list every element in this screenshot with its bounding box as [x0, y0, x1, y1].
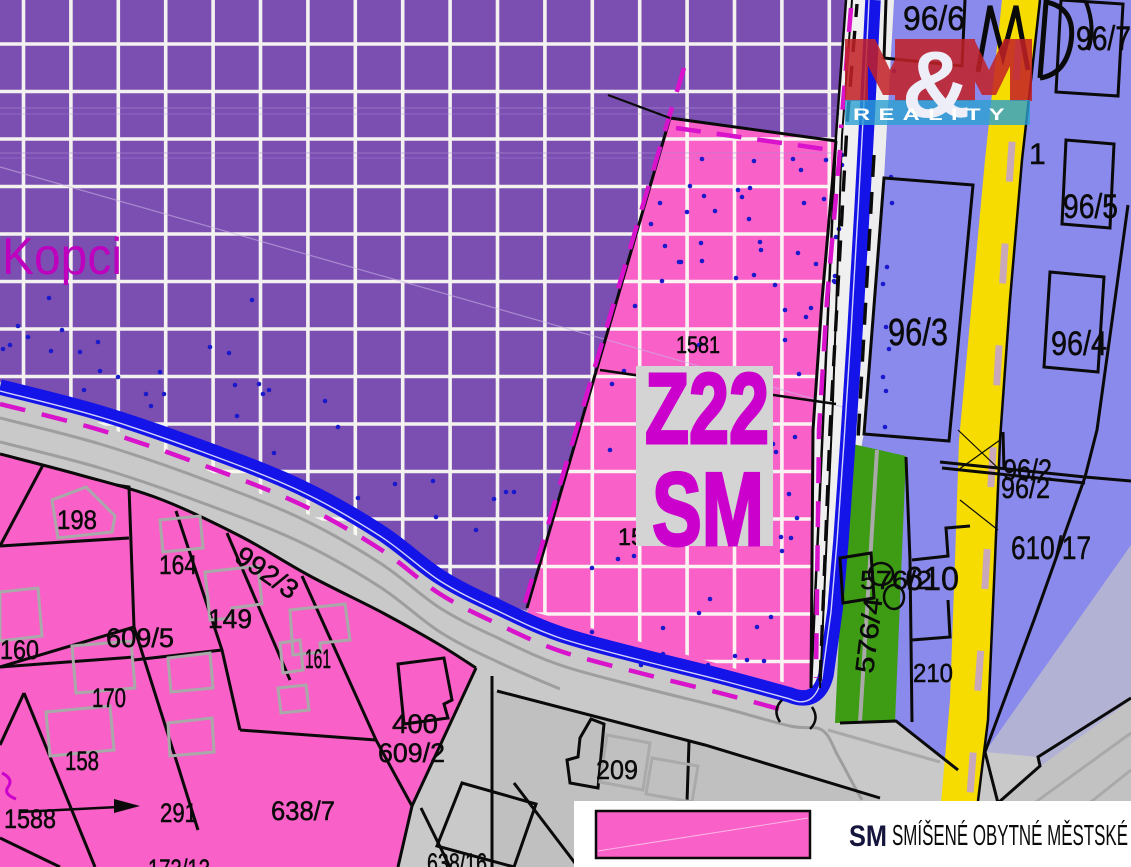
svg-text:Kopci: Kopci [2, 228, 122, 286]
svg-text:SMÍŠENÉ OBYTNÉ MĚSTSKÉ: SMÍŠENÉ OBYTNÉ MĚSTSKÉ [892, 818, 1128, 852]
svg-text:173/13: 173/13 [148, 854, 210, 867]
svg-text:96/4: 96/4 [1051, 325, 1107, 363]
svg-text:149: 149 [208, 604, 252, 634]
svg-text:REALITY: REALITY [853, 105, 1013, 124]
svg-text:609/2: 609/2 [378, 738, 445, 768]
svg-text:160: 160 [0, 635, 39, 665]
svg-text:SM: SM [652, 452, 764, 568]
svg-text:291: 291 [160, 798, 197, 828]
svg-text:158: 158 [65, 746, 99, 776]
svg-text:576/2: 576/2 [860, 565, 932, 595]
svg-text:Z22: Z22 [645, 353, 769, 465]
svg-text:96/5: 96/5 [1063, 188, 1118, 226]
svg-text:609/5: 609/5 [106, 623, 174, 653]
svg-text:96/3: 96/3 [888, 312, 948, 354]
svg-text:96/2: 96/2 [1001, 472, 1050, 505]
svg-text:161: 161 [305, 644, 331, 674]
svg-text:209: 209 [596, 755, 638, 785]
svg-text:1: 1 [1029, 138, 1046, 171]
svg-text:198: 198 [57, 505, 97, 535]
svg-text:210: 210 [913, 658, 953, 688]
svg-text:400: 400 [392, 709, 438, 739]
svg-text:1588: 1588 [4, 804, 56, 834]
svg-text:638/7: 638/7 [271, 796, 335, 826]
svg-text:164: 164 [159, 550, 197, 580]
svg-text:610/17: 610/17 [1011, 530, 1091, 566]
svg-text:SM: SM [849, 820, 887, 853]
svg-text:96/7: 96/7 [1076, 20, 1131, 58]
svg-text:170: 170 [92, 683, 126, 713]
svg-text:638/16: 638/16 [427, 848, 487, 867]
